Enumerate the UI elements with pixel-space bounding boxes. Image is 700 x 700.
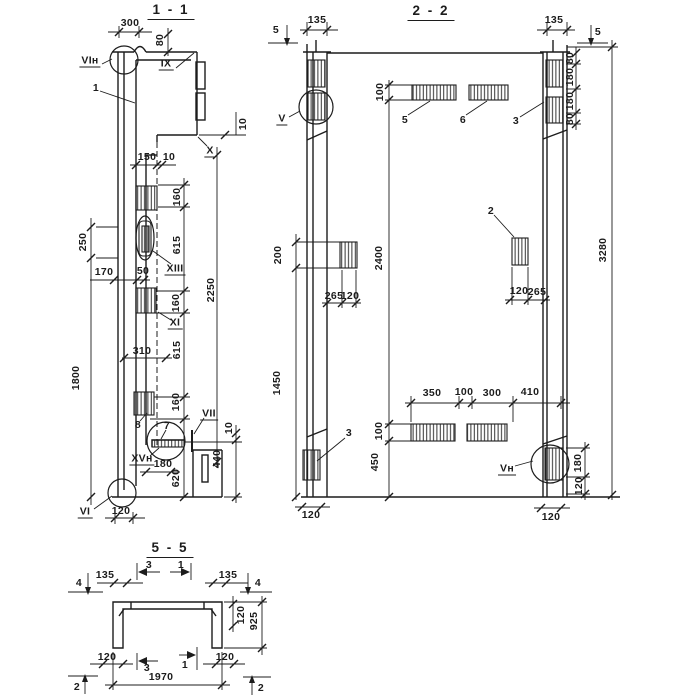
cut-mark-1-top: 1	[178, 559, 184, 571]
section-title-5-5: 5 - 5	[146, 540, 193, 558]
dim-135-left: 135	[308, 14, 326, 26]
part-label-3-top: 3	[513, 115, 519, 127]
dim-160-2: 160	[170, 294, 182, 312]
part-label-3-bottom: 3	[346, 427, 352, 439]
dim-120-s11: 120	[112, 505, 130, 517]
node-label-xi: XI	[168, 317, 183, 330]
node-label-xv-n: XVн	[129, 453, 154, 466]
dim-50: 50	[137, 265, 149, 277]
dim-120-bottom-right-s55: 120	[216, 651, 234, 663]
node-label-vi: VI	[78, 506, 93, 519]
s22-cut-arrows	[284, 38, 594, 46]
dim-300-s22: 300	[483, 387, 501, 399]
dim-410: 410	[521, 386, 539, 398]
s55-object	[113, 602, 222, 648]
drawing-sheet: { "meta": { "bg": "#ffffff", "ink": "#1c…	[0, 0, 700, 700]
dim-2250: 2250	[205, 278, 217, 303]
dim-180-bottom: 180	[572, 454, 584, 472]
dim-925: 925	[248, 612, 260, 630]
dim-450: 450	[369, 453, 381, 471]
dim-80-top: 80	[564, 52, 576, 64]
dim-120-mid-right: 120	[510, 285, 528, 297]
section-title-1-1: 1 - 1	[147, 2, 194, 20]
node-label-ix: IX	[159, 58, 174, 71]
dim-120-bottom: 120	[573, 477, 585, 495]
dim-250: 250	[77, 233, 89, 251]
node-label-xiii: XIII	[165, 263, 186, 276]
dim-120-bottom-left: 120	[302, 509, 320, 521]
dim-100-top: 100	[374, 83, 386, 101]
dim-120-bottom-right: 120	[542, 511, 560, 523]
cut-mark-5-left: 5	[273, 24, 279, 36]
node-label-vii: VII	[200, 408, 218, 421]
dim-135-left-s55: 135	[96, 569, 114, 581]
cut-mark-3-top: 3	[146, 559, 152, 571]
dim-10-step: 10	[237, 118, 249, 130]
dim-120-left: 120	[341, 290, 359, 302]
drawing-linework	[0, 0, 700, 700]
cut-mark-4-right: 4	[255, 577, 261, 589]
dim-100-mid: 100	[455, 386, 473, 398]
cut-mark-5-right: 5	[595, 26, 601, 38]
dim-10-right: 10	[223, 422, 235, 434]
dim-615-1: 615	[171, 236, 183, 254]
dim-160-1: 160	[171, 188, 183, 206]
dim-265-right: 265	[528, 286, 546, 298]
node-label-v-n: Vн	[498, 463, 516, 476]
part-label-5: 5	[402, 114, 408, 126]
dim-120-top-s55: 120	[235, 606, 247, 624]
part-label-7: 7	[164, 420, 170, 432]
dim-160-3: 160	[170, 393, 182, 411]
dim-180-top: 180	[564, 68, 576, 86]
dim-135-right-s55: 135	[219, 569, 237, 581]
dim-80: 80	[154, 34, 166, 46]
dim-1800: 1800	[70, 366, 82, 391]
dim-3280: 3280	[597, 238, 609, 263]
node-label-v: V	[276, 113, 287, 126]
dim-300: 300	[121, 17, 139, 29]
section-title-2-2: 2 - 2	[407, 3, 454, 21]
dim-150: 150	[138, 151, 156, 163]
dim-135-right: 135	[545, 14, 563, 26]
dim-180-top2: 180	[564, 92, 576, 110]
cut-mark-1-bottom: 1	[182, 659, 188, 671]
dim-80-top2: 80	[564, 113, 576, 125]
dim-440: 440	[211, 450, 223, 468]
dim-310: 310	[133, 345, 151, 357]
dim-170: 170	[95, 266, 113, 278]
dim-120-bottom-left-s55: 120	[98, 651, 116, 663]
dim-1450: 1450	[271, 371, 283, 396]
part-label-6: 6	[460, 114, 466, 126]
dim-2400: 2400	[373, 246, 385, 271]
part-label-2: 2	[488, 205, 494, 217]
part-label-8: 8	[135, 419, 141, 431]
dim-620: 620	[170, 469, 182, 487]
dim-100-bottom: 100	[373, 422, 385, 440]
cut-mark-2-left: 2	[74, 681, 80, 693]
cut-mark-2-right: 2	[258, 682, 264, 694]
dim-1970: 1970	[149, 671, 174, 683]
s55-ticks	[99, 579, 266, 689]
dim-10-face: 10	[163, 151, 175, 163]
cut-mark-4-left: 4	[76, 577, 82, 589]
node-label-vi-n: VIн	[79, 55, 100, 68]
node-label-x: X	[204, 145, 215, 158]
s55-cut-arrows	[82, 568, 255, 683]
dim-615-2: 615	[171, 341, 183, 359]
part-label-1: 1	[93, 82, 99, 94]
dim-200: 200	[272, 246, 284, 264]
dim-350: 350	[423, 387, 441, 399]
